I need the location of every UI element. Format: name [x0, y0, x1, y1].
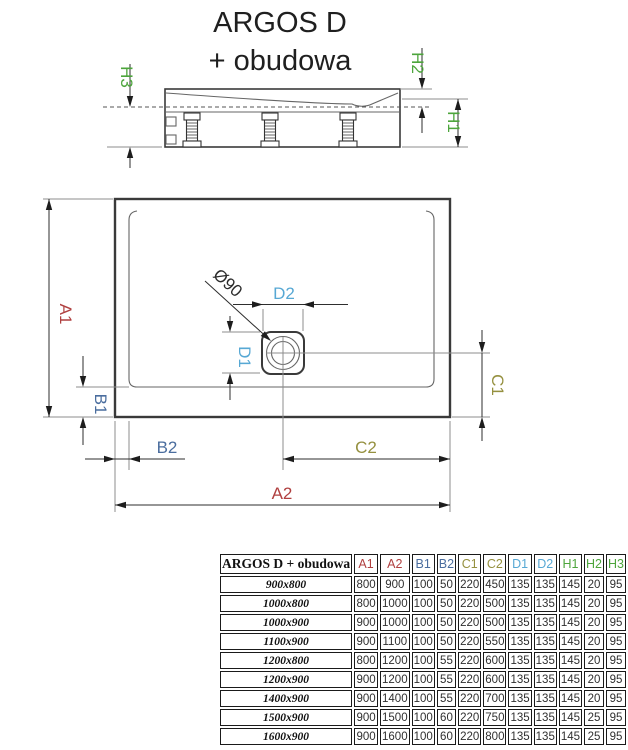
- dimensions-table: ARGOS D + obudowa A1A2B1B2C1C2D1D2H1H2H3…: [218, 552, 628, 747]
- value-cell: 100: [412, 576, 435, 593]
- h3-arrow-up: [127, 147, 133, 158]
- value-cell: 50: [437, 576, 456, 593]
- page: ARGOS D + obudowa: [0, 0, 628, 750]
- table-row-1100x900: 1100x9009001100100502205501351351452095: [220, 633, 626, 650]
- h3-label: H3: [117, 66, 136, 88]
- value-cell: 100: [412, 690, 435, 707]
- value-cell: 1200: [380, 652, 410, 669]
- d2-extensions: [263, 309, 303, 331]
- value-cell: 95: [606, 728, 626, 745]
- size-cell: 1200x800: [220, 652, 352, 669]
- value-cell: 135: [534, 652, 557, 669]
- value-cell: 220: [458, 576, 481, 593]
- value-cell: 135: [534, 671, 557, 688]
- value-cell: 145: [559, 595, 582, 612]
- col-header-A2: A2: [380, 554, 410, 574]
- value-cell: 220: [458, 652, 481, 669]
- table-row-1400x900: 1400x9009001400100552207001351351452095: [220, 690, 626, 707]
- value-cell: 135: [508, 728, 531, 745]
- col-header-C1: C1: [458, 554, 481, 574]
- col-header-H1: H1: [559, 554, 582, 574]
- b1-arrow-down: [80, 376, 86, 387]
- value-cell: 900: [354, 709, 378, 726]
- col-header-C2: C2: [483, 554, 506, 574]
- value-cell: 25: [584, 709, 604, 726]
- drain-diameter-label: Ø90: [209, 265, 246, 301]
- value-cell: 135: [508, 614, 531, 631]
- col-header-H2: H2: [584, 554, 604, 574]
- a1-arrow-down: [46, 406, 52, 417]
- table-row-1200x800: 1200x8008001200100552206001351351452095: [220, 652, 626, 669]
- d2-arrow-left: [303, 301, 314, 307]
- value-cell: 145: [559, 690, 582, 707]
- value-cell: 50: [437, 595, 456, 612]
- value-cell: 1200: [380, 671, 410, 688]
- c2-arrow-right: [439, 456, 450, 462]
- value-cell: 145: [559, 671, 582, 688]
- a2-arrow-right: [439, 502, 450, 508]
- size-cell: 1200x900: [220, 671, 352, 688]
- value-cell: 95: [606, 633, 626, 650]
- value-cell: 600: [483, 671, 506, 688]
- value-cell: 800: [483, 728, 506, 745]
- value-cell: 95: [606, 709, 626, 726]
- size-cell: 1000x900: [220, 614, 352, 631]
- value-cell: 20: [584, 614, 604, 631]
- value-cell: 900: [354, 614, 378, 631]
- value-cell: 220: [458, 709, 481, 726]
- value-cell: 95: [606, 614, 626, 631]
- value-cell: 800: [354, 576, 378, 593]
- h2-arrow-down: [419, 78, 425, 89]
- value-cell: 1000: [380, 614, 410, 631]
- value-cell: 20: [584, 671, 604, 688]
- value-cell: 135: [534, 709, 557, 726]
- value-cell: 1500: [380, 709, 410, 726]
- value-cell: 95: [606, 595, 626, 612]
- value-cell: 25: [584, 728, 604, 745]
- value-cell: 145: [559, 709, 582, 726]
- value-cell: 55: [437, 652, 456, 669]
- value-cell: 900: [354, 633, 378, 650]
- value-cell: 220: [458, 595, 481, 612]
- col-header-B2: B2: [437, 554, 456, 574]
- value-cell: 95: [606, 671, 626, 688]
- table-corner-label: ARGOS D + obudowa: [220, 554, 352, 574]
- d2-arrow-right: [252, 301, 263, 307]
- value-cell: 750: [483, 709, 506, 726]
- c1-arrow-down: [479, 342, 485, 353]
- size-cell: 1400x900: [220, 690, 352, 707]
- value-cell: 135: [508, 690, 531, 707]
- size-cell: 1000x800: [220, 595, 352, 612]
- value-cell: 135: [508, 576, 531, 593]
- value-cell: 135: [534, 595, 557, 612]
- value-cell: 95: [606, 576, 626, 593]
- c2-label: C2: [355, 438, 377, 457]
- a1-label: A1: [56, 304, 75, 325]
- col-header-B1: B1: [412, 554, 435, 574]
- b2-label: B2: [157, 438, 178, 457]
- value-cell: 1400: [380, 690, 410, 707]
- value-cell: 1600: [380, 728, 410, 745]
- value-cell: 100: [412, 595, 435, 612]
- d1-arrow-up: [227, 373, 233, 384]
- value-cell: 50: [437, 614, 456, 631]
- value-cell: 900: [354, 671, 378, 688]
- size-cell: 1500x900: [220, 709, 352, 726]
- value-cell: 220: [458, 614, 481, 631]
- a1-extensions: [43, 199, 113, 417]
- value-cell: 145: [559, 633, 582, 650]
- value-cell: 220: [458, 671, 481, 688]
- d2-label: D2: [273, 284, 295, 303]
- value-cell: 145: [559, 728, 582, 745]
- col-header-D1: D1: [508, 554, 531, 574]
- value-cell: 145: [559, 652, 582, 669]
- value-cell: 60: [437, 728, 456, 745]
- col-header-H3: H3: [606, 554, 626, 574]
- value-cell: 800: [354, 652, 378, 669]
- value-cell: 50: [437, 633, 456, 650]
- value-cell: 20: [584, 576, 604, 593]
- table-row-1600x900: 1600x9009001600100602208001351351452595: [220, 728, 626, 745]
- d1-arrow-down: [227, 321, 233, 332]
- value-cell: 135: [534, 633, 557, 650]
- value-cell: 100: [412, 652, 435, 669]
- c2-arrow-left: [283, 456, 294, 462]
- h1-arrow-up: [455, 99, 461, 110]
- value-cell: 900: [354, 690, 378, 707]
- value-cell: 60: [437, 709, 456, 726]
- table-row-1500x900: 1500x9009001500100602207501351351452595: [220, 709, 626, 726]
- b1-arrow-up: [80, 417, 86, 428]
- table-row-900x800: 900x800800900100502204501351351452095: [220, 576, 626, 593]
- value-cell: 135: [508, 633, 531, 650]
- value-cell: 220: [458, 633, 481, 650]
- h2-label: H2: [408, 52, 427, 74]
- value-cell: 135: [508, 671, 531, 688]
- value-cell: 100: [412, 614, 435, 631]
- h3-arrow-down: [127, 96, 133, 107]
- value-cell: 135: [534, 728, 557, 745]
- value-cell: 220: [458, 690, 481, 707]
- value-cell: 500: [483, 614, 506, 631]
- value-cell: 95: [606, 652, 626, 669]
- h1-arrow-down: [455, 136, 461, 147]
- table-row-1000x900: 1000x9009001000100502205001351351452095: [220, 614, 626, 631]
- b1-label: B1: [91, 394, 110, 415]
- value-cell: 900: [380, 576, 410, 593]
- value-cell: 55: [437, 671, 456, 688]
- h1-label: H1: [444, 111, 463, 133]
- table-header-row: ARGOS D + obudowa A1A2B1B2C1C2D1D2H1H2H3: [220, 554, 626, 574]
- value-cell: 135: [534, 576, 557, 593]
- side-view: H3 H2 H1: [103, 48, 468, 168]
- value-cell: 100: [412, 709, 435, 726]
- value-cell: 800: [354, 595, 378, 612]
- b2-arrow-left: [129, 456, 140, 462]
- value-cell: 20: [584, 595, 604, 612]
- d1-label: D1: [235, 346, 254, 368]
- col-header-A1: A1: [354, 554, 378, 574]
- value-cell: 450: [483, 576, 506, 593]
- value-cell: 220: [458, 728, 481, 745]
- value-cell: 1100: [380, 633, 410, 650]
- value-cell: 100: [412, 633, 435, 650]
- col-header-D2: D2: [534, 554, 557, 574]
- value-cell: 135: [508, 595, 531, 612]
- a2-label: A2: [272, 484, 293, 503]
- value-cell: 135: [534, 614, 557, 631]
- table-row-1000x800: 1000x8008001000100502205001351351452095: [220, 595, 626, 612]
- size-cell: 1100x900: [220, 633, 352, 650]
- c1-arrow-up: [479, 417, 485, 428]
- a1-arrow-up: [46, 199, 52, 210]
- table-row-1200x900: 1200x9009001200100552206001351351452095: [220, 671, 626, 688]
- value-cell: 20: [584, 690, 604, 707]
- value-cell: 145: [559, 576, 582, 593]
- value-cell: 500: [483, 595, 506, 612]
- value-cell: 700: [483, 690, 506, 707]
- a2-arrow-left: [115, 502, 126, 508]
- value-cell: 135: [508, 652, 531, 669]
- size-cell: 900x800: [220, 576, 352, 593]
- value-cell: 100: [412, 671, 435, 688]
- b2-arrow-right: [104, 456, 115, 462]
- value-cell: 55: [437, 690, 456, 707]
- top-view: Ø90 D2 D1 A1 B1: [43, 199, 507, 512]
- size-cell: 1600x900: [220, 728, 352, 745]
- value-cell: 95: [606, 690, 626, 707]
- value-cell: 900: [354, 728, 378, 745]
- value-cell: 100: [412, 728, 435, 745]
- value-cell: 550: [483, 633, 506, 650]
- value-cell: 20: [584, 652, 604, 669]
- value-cell: 1000: [380, 595, 410, 612]
- value-cell: 20: [584, 633, 604, 650]
- value-cell: 145: [559, 614, 582, 631]
- h2-arrow-up: [419, 107, 425, 118]
- value-cell: 135: [534, 690, 557, 707]
- c1-label: C1: [488, 374, 507, 396]
- value-cell: 600: [483, 652, 506, 669]
- value-cell: 135: [508, 709, 531, 726]
